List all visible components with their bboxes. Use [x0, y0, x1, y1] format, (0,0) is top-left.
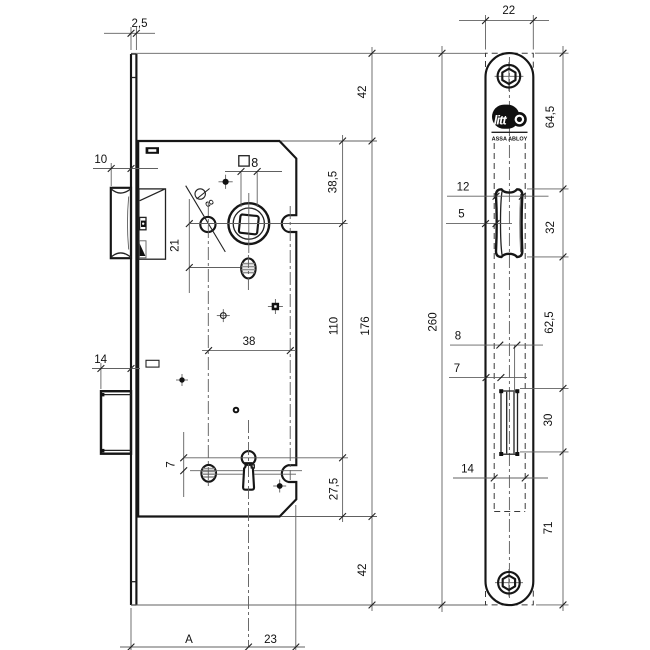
svg-text:10: 10 [94, 154, 107, 166]
svg-text:21: 21 [170, 239, 182, 252]
svg-text:8: 8 [455, 331, 461, 343]
svg-text:2,5: 2,5 [132, 18, 148, 30]
svg-text:8: 8 [251, 156, 258, 170]
svg-text:12: 12 [457, 182, 470, 194]
svg-text:260: 260 [428, 312, 440, 331]
svg-text:71: 71 [543, 522, 555, 535]
svg-text:30: 30 [543, 414, 555, 427]
svg-text:14: 14 [94, 354, 107, 366]
svg-text:litt: litt [494, 112, 508, 127]
svg-text:38,5: 38,5 [328, 171, 340, 193]
svg-text:32: 32 [545, 221, 557, 234]
svg-text:7: 7 [454, 363, 460, 375]
svg-text:23: 23 [264, 634, 277, 646]
svg-text:7: 7 [166, 461, 178, 467]
svg-text:ASSA ABLOY: ASSA ABLOY [492, 137, 528, 143]
svg-text:27,5: 27,5 [329, 478, 341, 500]
svg-text:64,5: 64,5 [545, 106, 557, 128]
svg-text:62,5: 62,5 [544, 311, 556, 333]
svg-text:176: 176 [360, 316, 372, 335]
svg-text:5: 5 [458, 209, 464, 221]
svg-text:110: 110 [329, 317, 341, 335]
svg-text:14: 14 [461, 464, 474, 476]
svg-text:42: 42 [357, 564, 369, 577]
svg-text:42: 42 [357, 86, 369, 99]
svg-text:A: A [185, 634, 193, 646]
svg-text:22: 22 [502, 5, 515, 17]
svg-text:38: 38 [243, 336, 256, 348]
